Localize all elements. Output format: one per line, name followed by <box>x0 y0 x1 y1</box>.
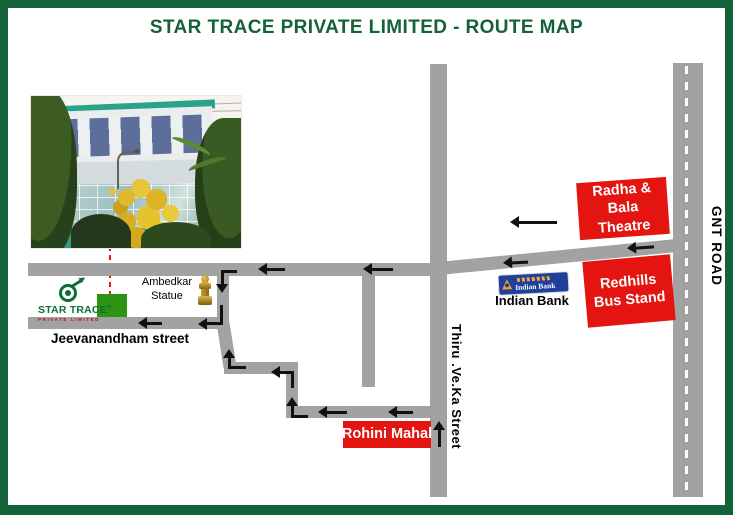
indian-bank-label: Indian Bank <box>492 293 572 308</box>
photo-bush <box>71 214 131 249</box>
photo-street-lamp <box>117 151 137 189</box>
photo-yellow-flowers <box>109 188 116 195</box>
building-photo <box>30 95 242 249</box>
indian-bank-logo-text: Indian Bank <box>515 281 556 292</box>
statue-pedestal <box>201 289 209 296</box>
rohini-mahal-box: Rohini Mahal <box>343 421 431 448</box>
arrow-left-icon <box>372 268 393 271</box>
photo-tree-left <box>30 95 77 249</box>
arrow-left-icon <box>267 268 285 271</box>
photo-bush <box>141 222 211 249</box>
logo-subtitle: PRIVATE LIMITED <box>38 317 98 322</box>
statue-base <box>198 296 212 305</box>
arrow-turn-up-icon <box>291 406 308 418</box>
indian-bank-logo: Indian Bank <box>499 272 569 295</box>
radha-bala-theatre-box: Radha & Bala Theatre <box>576 177 670 240</box>
road-dead-end <box>362 276 375 387</box>
redhills-bus-stand-box: Redhills Bus Stand <box>582 254 675 327</box>
ambedkar-statue-icon <box>197 275 213 306</box>
gnt-road-label: GNT ROAD <box>709 206 724 286</box>
star-trace-logo-icon <box>59 284 77 302</box>
arrow-turn-up-icon <box>228 358 246 369</box>
arrow-left-icon <box>397 411 413 414</box>
logo-dot <box>65 290 71 296</box>
logo-name-text: STAR TRACE <box>38 304 107 316</box>
star-trace-logo: STAR TRACE® PRIVATE LIMITED <box>38 284 98 322</box>
statue-bust <box>199 282 211 289</box>
page-title: STAR TRACE PRIVATE LIMITED - ROUTE MAP <box>0 17 733 39</box>
arrow-turn-left-icon <box>280 371 294 388</box>
route-map-frame: STAR TRACE PRIVATE LIMITED - ROUTE MAP <box>0 0 733 515</box>
logo-text: STAR TRACE® <box>38 304 98 316</box>
arrow-left-icon <box>147 322 162 325</box>
arrow-turn-left-icon <box>207 305 223 325</box>
logo-flag <box>71 279 82 287</box>
road-gnt <box>673 63 703 497</box>
thiru-ve-ka-street-label: Thiru .Ve.Ka Street <box>449 324 464 449</box>
arrow-turn-down-icon <box>221 270 237 284</box>
gnt-road-center-dashes <box>685 66 688 494</box>
ambedkar-statue-label: Ambedkar Statue <box>138 276 196 304</box>
road-bottom <box>286 406 438 418</box>
logo-registered-mark: ® <box>107 305 112 311</box>
arrow-left-icon <box>519 221 557 224</box>
indian-bank-symbol-icon <box>502 279 513 290</box>
arrow-left-icon <box>327 411 347 414</box>
arrow-up-icon <box>438 430 441 447</box>
jeevanandham-street-label: Jeevanandham street <box>50 331 190 346</box>
